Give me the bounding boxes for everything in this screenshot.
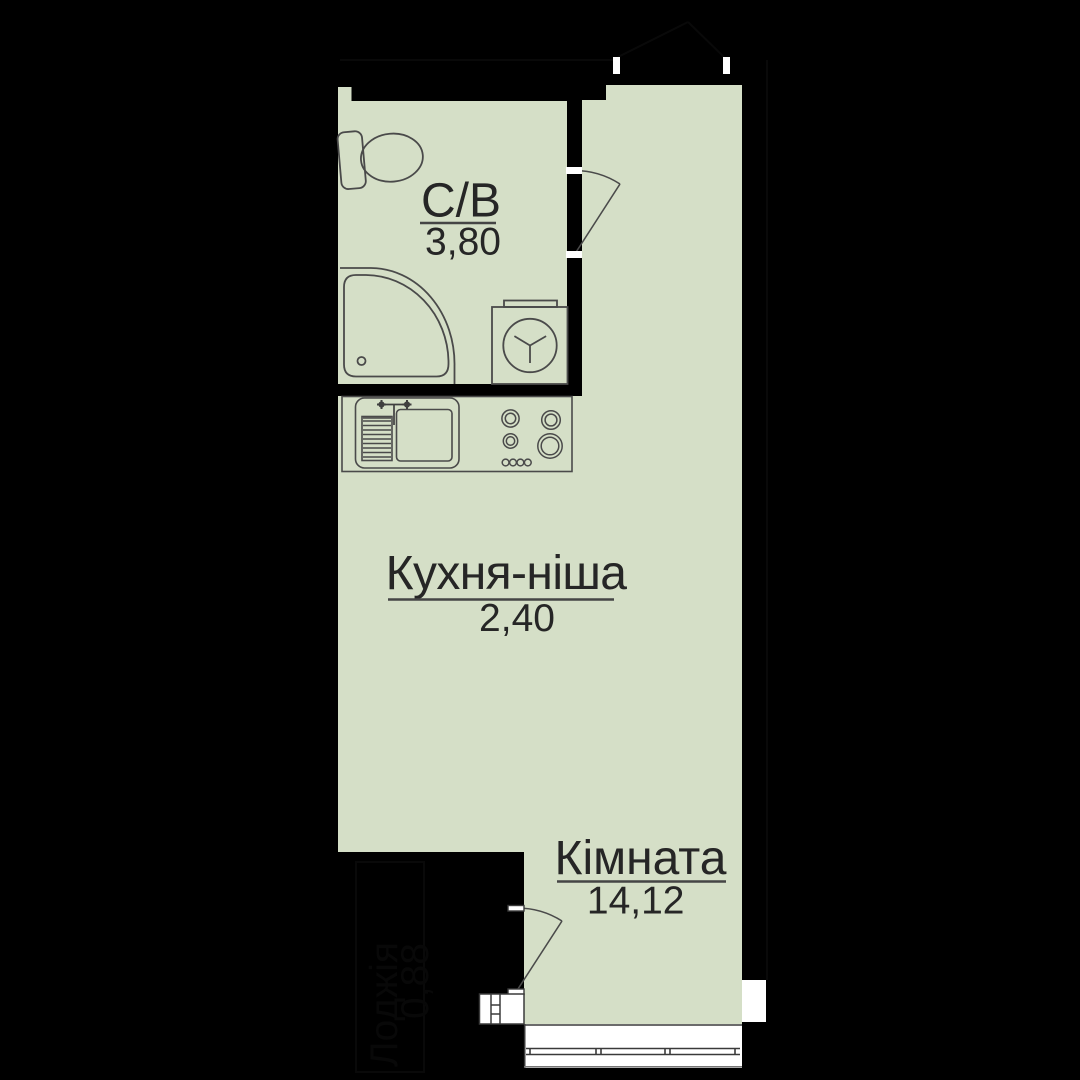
svg-text:3,80: 3,80 <box>425 221 501 264</box>
svg-text:2,40: 2,40 <box>479 597 555 640</box>
svg-text:14,12: 14,12 <box>587 880 685 923</box>
svg-text:0,88: 0,88 <box>394 943 437 1019</box>
svg-text:Кімната: Кімната <box>555 832 727 885</box>
svg-text:Кухня-ніша: Кухня-ніша <box>386 547 628 600</box>
